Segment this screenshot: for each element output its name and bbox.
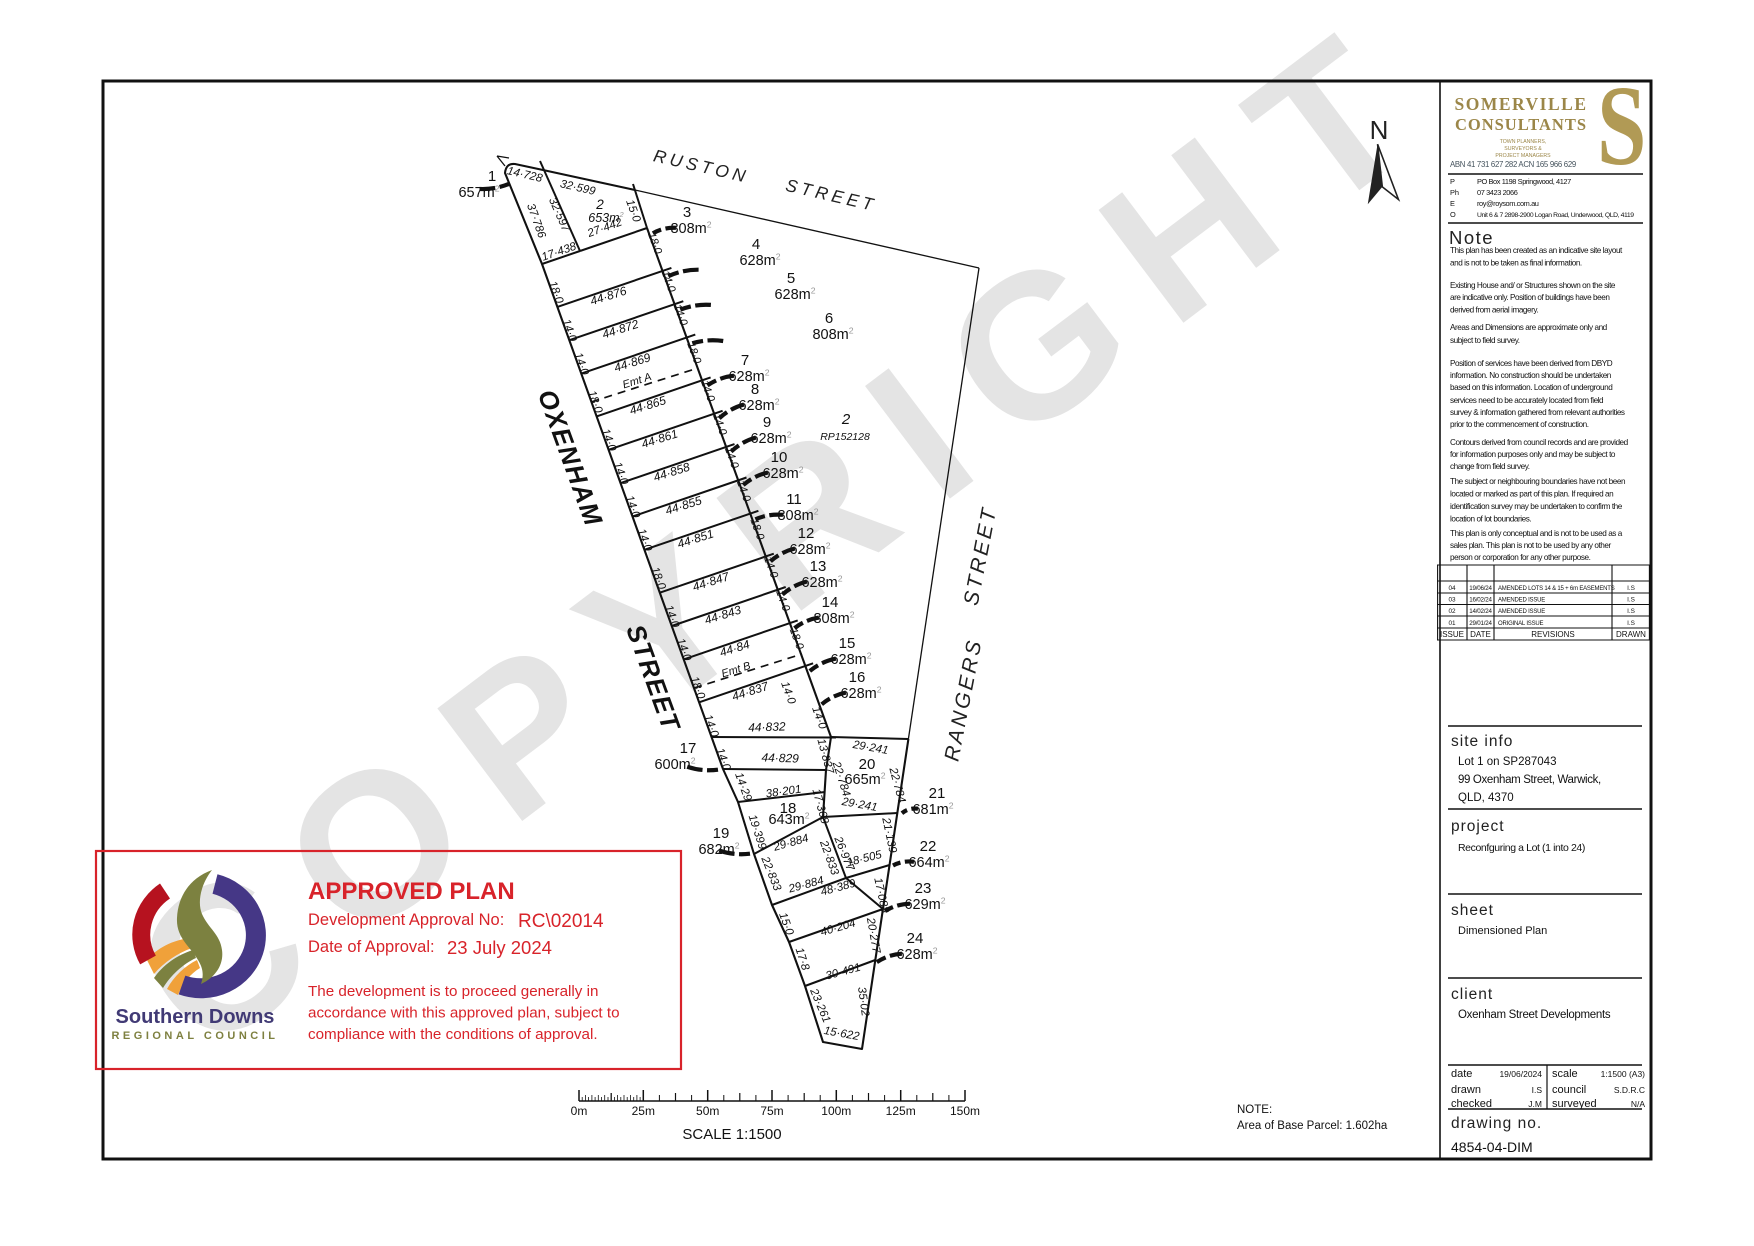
- svg-text:site info: site info: [1451, 733, 1513, 750]
- svg-text:The development is to proceed: The development is to proceed generally …: [308, 983, 598, 1000]
- svg-text:E: E: [1450, 199, 1455, 208]
- svg-text:808m2: 808m2: [670, 220, 711, 238]
- svg-text:identification survey may be u: identification survey may be undertaken …: [1450, 502, 1623, 511]
- svg-text:10: 10: [771, 449, 788, 466]
- svg-text:19/06/24: 19/06/24: [1469, 585, 1492, 592]
- svg-text:5: 5: [787, 270, 795, 287]
- svg-text:14: 14: [822, 594, 839, 611]
- svg-text:44·829: 44·829: [761, 750, 799, 765]
- svg-text:19/06/2024: 19/06/2024: [1499, 1069, 1542, 1079]
- svg-text:sales plan. This plan is not t: sales plan. This plan is not to be used …: [1450, 541, 1612, 550]
- svg-text:13: 13: [810, 558, 827, 575]
- svg-text:11: 11: [786, 491, 802, 508]
- svg-text:DATE: DATE: [1470, 630, 1491, 639]
- svg-text:Development Approval No:: Development Approval No:: [308, 911, 504, 929]
- svg-text:Oxenham Street Developments: Oxenham Street Developments: [1458, 1009, 1611, 1021]
- svg-text:2: 2: [595, 197, 604, 212]
- svg-text:Existing House and/ or Structu: Existing House and/ or Structures shown …: [1450, 281, 1616, 290]
- svg-text:The subject or neighbouring bo: The subject or neighbouring boundaries h…: [1450, 477, 1626, 486]
- svg-text:2: 2: [841, 411, 851, 428]
- svg-text:16: 16: [849, 669, 866, 686]
- svg-text:SURVEYORS &: SURVEYORS &: [1504, 146, 1542, 152]
- svg-text:99 Oxenham Street, Warwick,: 99 Oxenham Street, Warwick,: [1458, 774, 1601, 786]
- svg-text:I.S: I.S: [1532, 1085, 1543, 1095]
- svg-text:checked: checked: [1451, 1098, 1492, 1110]
- svg-text:4854-04-DIM: 4854-04-DIM: [1451, 1139, 1533, 1155]
- svg-text:P: P: [1450, 177, 1455, 186]
- svg-text:6: 6: [825, 310, 833, 327]
- svg-text:RC\02014: RC\02014: [518, 911, 604, 932]
- svg-text:O: O: [1450, 210, 1456, 219]
- svg-text:AMENDED ISSUE: AMENDED ISSUE: [1498, 598, 1545, 604]
- svg-text:24: 24: [907, 930, 924, 947]
- svg-text:50m: 50m: [696, 1104, 719, 1118]
- svg-text:ISSUE: ISSUE: [1440, 630, 1464, 639]
- svg-text:located or marked as part of t: located or marked as part of this plan. …: [1450, 490, 1614, 499]
- svg-text:are indicative only. Position: are indicative only. Position of buildin…: [1450, 293, 1610, 302]
- svg-text:Dimensioned Plan: Dimensioned Plan: [1458, 925, 1547, 937]
- svg-text:sheet: sheet: [1451, 902, 1494, 919]
- svg-text:Lot 1 on SP287043: Lot 1 on SP287043: [1458, 756, 1556, 768]
- svg-text:AMENDED LOTS 14 & 15 + 6m EASE: AMENDED LOTS 14 & 15 + 6m EASEMENTS: [1498, 586, 1615, 592]
- svg-text:PROJECT MANAGERS: PROJECT MANAGERS: [1495, 153, 1551, 159]
- svg-text:628m2: 628m2: [840, 685, 881, 703]
- svg-text:9: 9: [763, 414, 771, 431]
- svg-text:20: 20: [859, 756, 876, 773]
- svg-text:location of lot boundaries.: location of lot boundaries.: [1450, 515, 1531, 524]
- svg-text:628m2: 628m2: [789, 541, 830, 559]
- svg-text:information. No construction s: information. No construction should be u…: [1450, 371, 1612, 380]
- svg-text:808m2: 808m2: [812, 326, 853, 344]
- svg-text:681m2: 681m2: [912, 801, 953, 819]
- svg-text:664m2: 664m2: [908, 854, 949, 872]
- svg-text:17: 17: [680, 740, 697, 757]
- svg-text:150m: 150m: [950, 1104, 980, 1118]
- svg-text:03: 03: [1448, 597, 1456, 604]
- svg-text:This plan has been created as: This plan has been created as an indicat…: [1450, 246, 1623, 255]
- svg-text:100m: 100m: [821, 1104, 851, 1118]
- svg-text:prior to the commencement of c: prior to the commencement of constructio…: [1450, 420, 1589, 429]
- svg-text:07 3423 2066: 07 3423 2066: [1477, 188, 1518, 197]
- svg-text:Contours derived from council: Contours derived from council records an…: [1450, 438, 1629, 447]
- svg-text:Unit 6 & 7 2898-2900 Logan Roa: Unit 6 & 7 2898-2900 Logan Road, Underwo…: [1477, 212, 1634, 219]
- svg-text:1: 1: [488, 168, 496, 185]
- svg-text:75m: 75m: [760, 1104, 783, 1118]
- svg-text:04: 04: [1448, 585, 1456, 592]
- svg-text:Reconfguring a Lot (1 into 24): Reconfguring a Lot (1 into 24): [1458, 842, 1585, 854]
- svg-text:Note: Note: [1449, 227, 1494, 248]
- svg-text:02: 02: [1448, 608, 1456, 615]
- svg-text:628m2: 628m2: [738, 397, 779, 415]
- svg-text:REGIONAL COUNCIL: REGIONAL COUNCIL: [111, 1030, 278, 1042]
- svg-text:125m: 125m: [886, 1104, 916, 1118]
- svg-text:S: S: [1597, 64, 1646, 190]
- svg-text:15: 15: [839, 635, 856, 652]
- svg-text:628m2: 628m2: [739, 252, 780, 270]
- svg-text:based on this information. Loc: based on this information. Location of u…: [1450, 383, 1613, 392]
- svg-text:653m2: 653m2: [588, 210, 624, 225]
- svg-text:0m: 0m: [571, 1104, 588, 1118]
- svg-text:628m2: 628m2: [774, 286, 815, 304]
- svg-text:drawn: drawn: [1451, 1084, 1481, 1096]
- svg-text:7: 7: [741, 352, 749, 369]
- svg-text:ORIGINAL ISSUE: ORIGINAL ISSUE: [1498, 621, 1544, 627]
- svg-text:subject to field survey.: subject to field survey.: [1450, 336, 1520, 345]
- svg-text:628m2: 628m2: [801, 574, 842, 592]
- svg-text:628m2: 628m2: [896, 946, 937, 964]
- svg-text:01: 01: [1448, 620, 1456, 627]
- svg-text:derived from aerial imagery.: derived from aerial imagery.: [1450, 306, 1538, 315]
- svg-text:PO Box 1198 Springwood, 4127: PO Box 1198 Springwood, 4127: [1477, 177, 1571, 186]
- svg-text:NOTE:: NOTE:: [1237, 1104, 1272, 1116]
- svg-text:I.S: I.S: [1627, 585, 1635, 592]
- svg-text:44·832: 44·832: [748, 719, 786, 734]
- svg-text:SOMERVILLE: SOMERVILLE: [1454, 94, 1587, 114]
- svg-text:and is not to be taken as fina: and is not to be taken as final informat…: [1450, 259, 1582, 268]
- svg-text:629m2: 629m2: [904, 896, 945, 914]
- svg-text:16/02/24: 16/02/24: [1469, 597, 1492, 604]
- svg-text:S.D.R.C: S.D.R.C: [1614, 1085, 1645, 1095]
- svg-text:I.S: I.S: [1627, 597, 1635, 604]
- svg-text:Area of Base Parcel: 1.602ha: Area of Base Parcel: 1.602ha: [1237, 1120, 1388, 1132]
- svg-text:628m2: 628m2: [750, 430, 791, 448]
- svg-text:628m2: 628m2: [728, 368, 769, 386]
- svg-text:QLD, 4370: QLD, 4370: [1458, 792, 1514, 804]
- svg-text:Position of services have been: Position of services have been derived f…: [1450, 359, 1613, 368]
- svg-text:I.S: I.S: [1627, 608, 1635, 615]
- svg-text:roy@roysom.com.au: roy@roysom.com.au: [1477, 199, 1539, 208]
- svg-text:12: 12: [798, 525, 815, 542]
- svg-text:3: 3: [683, 204, 691, 221]
- svg-text:1:1500 (A3): 1:1500 (A3): [1601, 1069, 1646, 1079]
- svg-text:CONSULTANTS: CONSULTANTS: [1455, 115, 1587, 134]
- svg-text:808m2: 808m2: [777, 507, 818, 525]
- svg-text:I.S: I.S: [1627, 620, 1635, 627]
- svg-text:Ph: Ph: [1450, 188, 1459, 197]
- svg-text:council: council: [1552, 1084, 1586, 1096]
- svg-text:for information purposes only: for information purposes only and may be…: [1450, 450, 1616, 459]
- svg-text:4: 4: [752, 236, 760, 253]
- svg-text:22: 22: [920, 838, 937, 855]
- svg-text:compliance with the conditions: compliance with the conditions of approv…: [308, 1026, 598, 1043]
- svg-text:628m2: 628m2: [830, 651, 871, 669]
- svg-text:25m: 25m: [632, 1104, 655, 1118]
- svg-text:21: 21: [929, 785, 946, 802]
- svg-text:accordance with this approved: accordance with this approved plan, subj…: [308, 1005, 620, 1022]
- svg-text:808m2: 808m2: [813, 610, 854, 628]
- svg-text:ABN 41 731 627 282 ACN 16: ABN 41 731 627 282 ACN 165 966 629: [1450, 160, 1576, 169]
- svg-text:8: 8: [751, 381, 759, 398]
- svg-text:Southern Downs: Southern Downs: [116, 1006, 275, 1028]
- svg-text:surveyed: surveyed: [1552, 1098, 1597, 1110]
- svg-text:RP152128: RP152128: [820, 431, 870, 443]
- svg-text:client: client: [1451, 986, 1493, 1003]
- svg-text:AMENDED ISSUE: AMENDED ISSUE: [1498, 609, 1545, 615]
- svg-text:23 July 2024: 23 July 2024: [447, 937, 552, 958]
- svg-text:SCALE 1:1500: SCALE 1:1500: [682, 1126, 781, 1143]
- svg-text:This plan is only conceptual a: This plan is only conceptual and is not …: [1450, 529, 1623, 538]
- svg-text:person or corporation for any: person or corporation for any other purp…: [1450, 553, 1591, 562]
- svg-text:services need to be accurately: services need to be accurately located f…: [1450, 396, 1604, 405]
- svg-text:DRAWN: DRAWN: [1616, 630, 1646, 639]
- svg-text:23: 23: [915, 880, 932, 897]
- svg-text:J.M: J.M: [1528, 1099, 1542, 1109]
- svg-text:Areas and Dimensions are appro: Areas and Dimensions are approximate onl…: [1450, 323, 1608, 332]
- svg-text:TOWN PLANNERS,: TOWN PLANNERS,: [1500, 139, 1547, 145]
- svg-text:643m2: 643m2: [768, 811, 809, 829]
- svg-text:N/A: N/A: [1631, 1099, 1646, 1109]
- svg-text:APPROVED PLAN: APPROVED PLAN: [308, 878, 515, 905]
- svg-text:change from field survey.: change from field survey.: [1450, 462, 1530, 471]
- svg-text:drawing no.: drawing no.: [1451, 1115, 1542, 1132]
- svg-text:14/02/24: 14/02/24: [1469, 608, 1492, 615]
- svg-text:Date of Approval:: Date of Approval:: [308, 938, 435, 956]
- svg-text:19: 19: [713, 825, 730, 842]
- svg-text:survey & information gathered: survey & information gathered from relev…: [1450, 408, 1625, 417]
- svg-text:600m2: 600m2: [654, 756, 695, 774]
- svg-text:628m2: 628m2: [762, 465, 803, 483]
- svg-text:scale: scale: [1552, 1068, 1578, 1080]
- svg-text:date: date: [1451, 1068, 1472, 1080]
- svg-text:665m2: 665m2: [844, 771, 885, 789]
- svg-text:29/01/24: 29/01/24: [1469, 620, 1492, 627]
- svg-text:N: N: [1370, 115, 1389, 145]
- svg-text:project: project: [1451, 818, 1505, 835]
- svg-text:REVISIONS: REVISIONS: [1531, 630, 1575, 639]
